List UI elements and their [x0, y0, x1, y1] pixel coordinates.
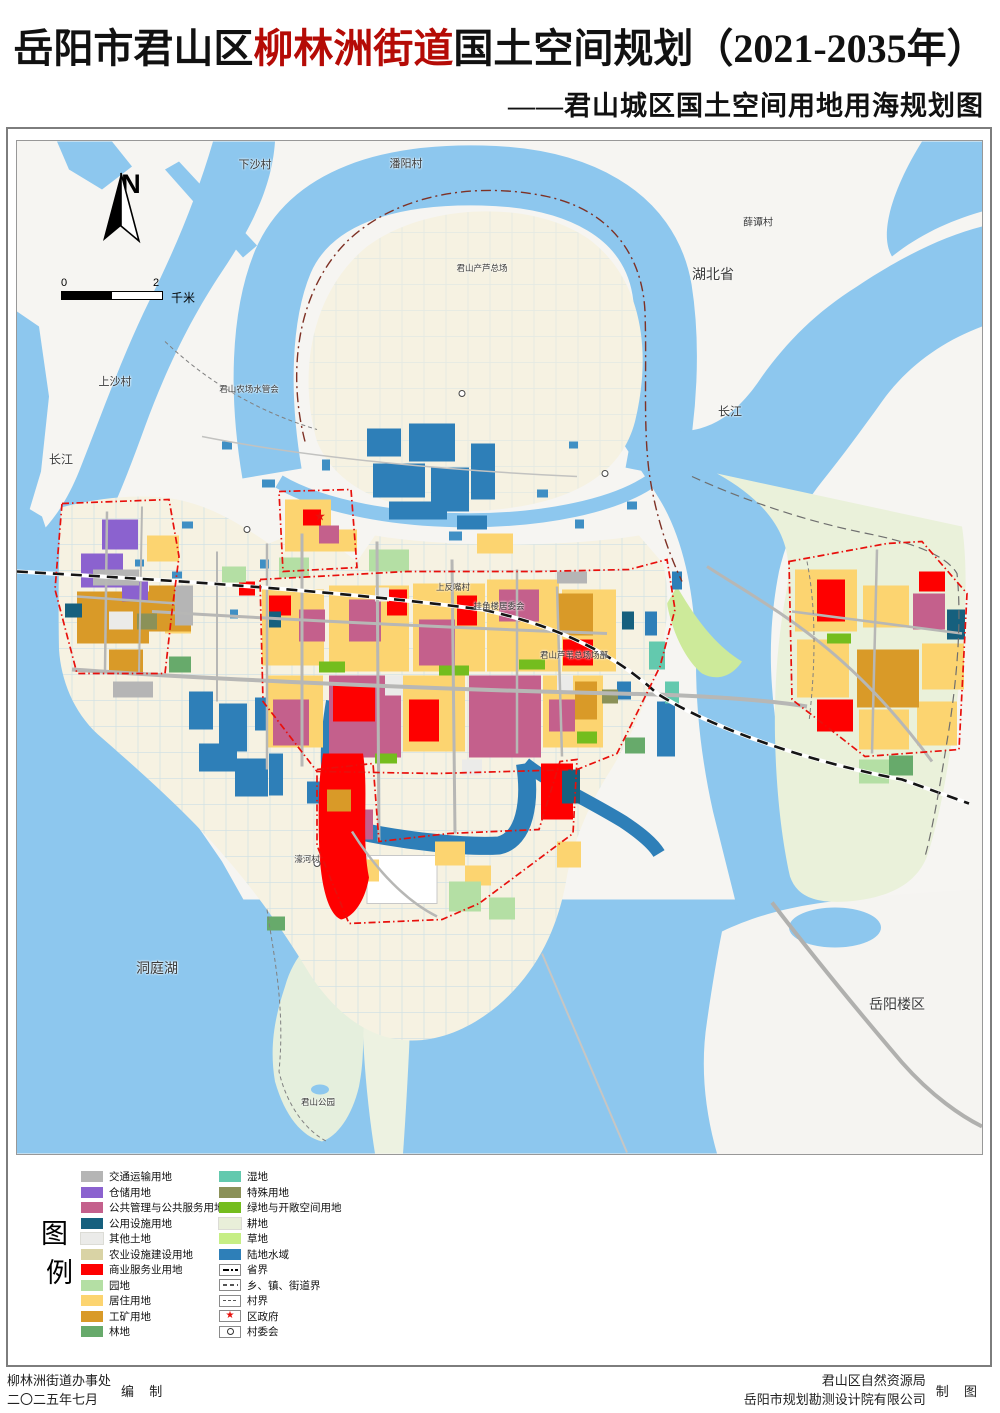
legend-swatch — [81, 1249, 103, 1260]
legend-label: 居住用地 — [109, 1293, 151, 1308]
legend-label: 乡、镇、街道界 — [247, 1278, 321, 1293]
footer-left-date: 二〇二五年七月 — [7, 1391, 111, 1410]
legend-label: 公用设施用地 — [109, 1216, 172, 1231]
legend-item-green_open: 绿地与开敞空间用地 — [219, 1200, 342, 1216]
legend-swatch — [219, 1202, 241, 1213]
legend-item-agri_facility: 农业设施建设用地 — [81, 1247, 219, 1263]
footer-right-org2: 岳阳市规划勘测设计院有限公司 — [744, 1391, 926, 1410]
legend-item-grassland: 草地 — [219, 1231, 342, 1247]
legend-title: 图例 — [41, 1215, 75, 1293]
district-government-marker: ★ — [314, 510, 326, 525]
legend-swatch — [81, 1311, 103, 1322]
legend-column-left: 交通运输用地仓储用地公共管理与公共服务用地公用设施用地其他土地农业设施建设用地商… — [81, 1169, 219, 1340]
legend: 交通运输用地仓储用地公共管理与公共服务用地公用设施用地其他土地农业设施建设用地商… — [81, 1169, 342, 1340]
legend-item-other_land: 其他土地 — [81, 1231, 219, 1247]
scale-unit: 千米 — [171, 289, 195, 306]
legend-item-water: 陆地水域 — [219, 1247, 342, 1263]
scale-bar-graphic — [61, 291, 163, 300]
legend-title-char: 图 — [41, 1215, 75, 1254]
legend-label: 交通运输用地 — [109, 1169, 172, 1184]
legend-item-transport: 交通运输用地 — [81, 1169, 219, 1185]
planning-map-page: 岳阳市君山区柳林洲街道国土空间规划（2021-2035年） ——君山城区国土空间… — [0, 0, 1000, 1413]
legend-label: 其他土地 — [109, 1231, 151, 1246]
legend-label: 园地 — [109, 1278, 130, 1293]
legend-swatch — [81, 1326, 103, 1337]
legend-item-public_admin: 公共管理与公共服务用地 — [81, 1200, 219, 1216]
legend-label: 工矿用地 — [109, 1309, 151, 1324]
legend-swatch — [81, 1218, 103, 1229]
legend-swatch — [219, 1171, 241, 1182]
title-prefix: 岳阳市君山区 — [13, 26, 253, 71]
legend-item-orchard: 园地 — [81, 1278, 219, 1294]
footer-right-role: 制 图 — [936, 1381, 983, 1400]
footer-left-org: 柳林洲街道办事处 — [7, 1372, 111, 1391]
footer-left-role: 编 制 — [121, 1381, 168, 1400]
legend-label: 陆地水域 — [247, 1247, 289, 1262]
village_boundary-line-icon — [223, 1300, 238, 1301]
legend-item-town_boundary: 乡、镇、街道界 — [219, 1278, 342, 1294]
north-arrow-icon — [101, 171, 141, 245]
legend-label: 商业服务业用地 — [109, 1262, 183, 1277]
legend-item-province_boundary: 省界 — [219, 1262, 342, 1278]
legend-item-village_cmte: 村委会 — [219, 1324, 342, 1340]
title-highlight: 柳林洲街道 — [253, 26, 453, 71]
legend-label: 村委会 — [247, 1324, 279, 1339]
legend-swatch — [219, 1187, 241, 1198]
legend-swatch — [81, 1187, 103, 1198]
legend-swatch — [81, 1264, 103, 1275]
legend-symbol-box — [219, 1326, 241, 1338]
legend-item-cropland: 耕地 — [219, 1216, 342, 1232]
legend-item-residential: 居住用地 — [81, 1293, 219, 1309]
legend-item-district_gov: ★区政府 — [219, 1309, 342, 1325]
legend-label: 公共管理与公共服务用地 — [109, 1200, 225, 1215]
title-suffix: 国土空间规划（2021-2035年） — [453, 26, 986, 71]
legend-symbol-box: ★ — [219, 1310, 241, 1322]
legend-label: 草地 — [247, 1231, 268, 1246]
legend-label: 湿地 — [247, 1169, 268, 1184]
north-indicator: N — [101, 171, 161, 198]
legend-label: 农业设施建设用地 — [109, 1247, 193, 1262]
legend-title-char: 例 — [46, 1254, 75, 1293]
page-subtitle: ——君山城区国土空间用地用海规划图 — [508, 84, 984, 123]
legend-item-forest: 林地 — [81, 1324, 219, 1340]
scale-bar: 0 2 千米 — [61, 277, 201, 300]
scale-max: 2 — [153, 277, 159, 289]
legend-line-box — [219, 1279, 241, 1291]
legend-label: 绿地与开敞空间用地 — [247, 1200, 342, 1215]
legend-item-village_boundary: 村界 — [219, 1293, 342, 1309]
legend-item-industrial: 工矿用地 — [81, 1309, 219, 1325]
legend-swatch — [219, 1233, 241, 1244]
legend-line-box — [219, 1264, 241, 1276]
legend-swatch — [81, 1280, 103, 1291]
legend-item-utilities: 公用设施用地 — [81, 1216, 219, 1232]
circle-icon — [227, 1328, 234, 1335]
star-icon: ★ — [226, 1311, 235, 1321]
footer: 柳林洲街道办事处 二〇二五年七月 编 制 君山区自然资源局 岳阳市规划勘测设计院… — [7, 1372, 993, 1410]
footer-right-org1: 君山区自然资源局 — [744, 1372, 926, 1391]
legend-label: 特殊用地 — [247, 1185, 289, 1200]
scale-zero: 0 — [61, 277, 67, 289]
legend-item-commercial: 商业服务业用地 — [81, 1262, 219, 1278]
town_boundary-line-icon — [223, 1284, 238, 1286]
legend-label: 耕地 — [247, 1216, 268, 1231]
map-frame: ★ 下沙村潘阳村薛谭村湖北省长江长江上沙村君山农场水管会君山产芦总场上反嘴村挂角… — [6, 127, 992, 1367]
legend-label: 林地 — [109, 1324, 130, 1339]
legend-column-right: 湿地特殊用地绿地与开敞空间用地耕地草地陆地水域省界乡、镇、街道界村界★区政府村委… — [219, 1169, 342, 1340]
legend-swatch — [81, 1171, 103, 1182]
page-title: 岳阳市君山区柳林洲街道国土空间规划（2021-2035年） — [0, 16, 1000, 74]
legend-swatch — [219, 1218, 241, 1229]
legend-swatch — [81, 1202, 103, 1213]
legend-label: 仓储用地 — [109, 1185, 151, 1200]
legend-item-wetland: 湿地 — [219, 1169, 342, 1185]
legend-label: 村界 — [247, 1293, 268, 1308]
legend-line-box — [219, 1295, 241, 1307]
legend-item-storage: 仓储用地 — [81, 1185, 219, 1201]
legend-label: 区政府 — [247, 1309, 279, 1324]
legend-item-special: 特殊用地 — [219, 1185, 342, 1201]
legend-swatch — [81, 1233, 103, 1244]
legend-label: 省界 — [247, 1262, 268, 1277]
legend-swatch — [81, 1295, 103, 1306]
legend-swatch — [219, 1249, 241, 1260]
map: ★ 下沙村潘阳村薛谭村湖北省长江长江上沙村君山农场水管会君山产芦总场上反嘴村挂角… — [16, 140, 983, 1155]
province_boundary-line-icon — [223, 1269, 238, 1271]
